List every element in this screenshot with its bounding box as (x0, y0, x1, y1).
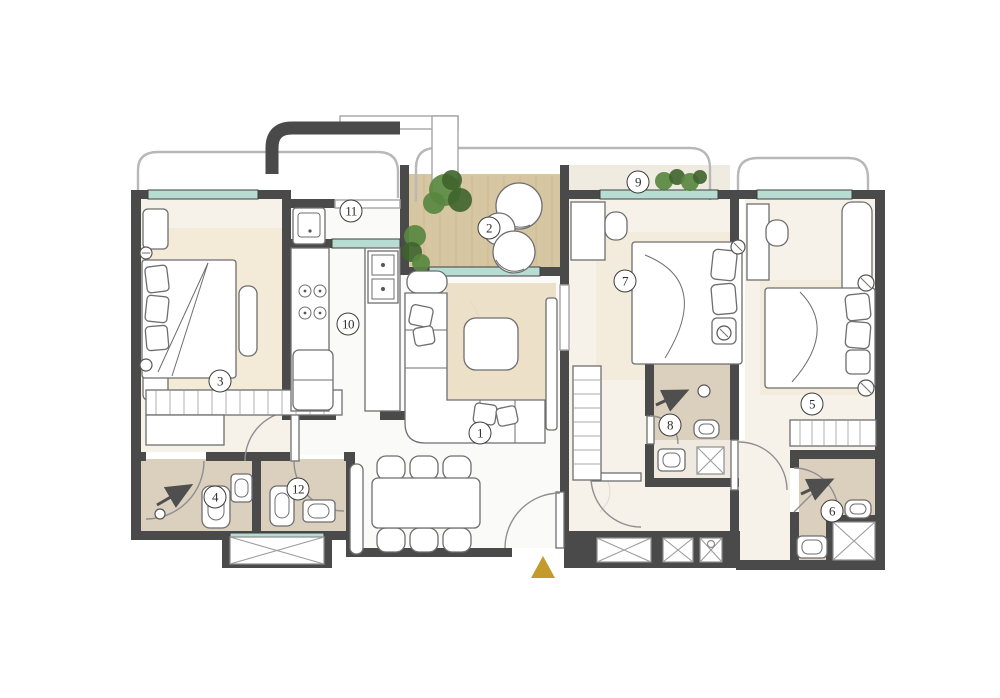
room-marker-12: 12 (287, 478, 310, 501)
nightstand (143, 209, 168, 249)
washbasin (231, 474, 252, 502)
entrance-marker (531, 556, 555, 578)
desk (747, 204, 769, 280)
sofa-pillow (408, 304, 434, 328)
window-bedroom5 (757, 190, 852, 199)
console-bench (350, 464, 363, 554)
dresser (790, 420, 876, 446)
floor-plan-drawing (0, 0, 1000, 698)
living-furniture (405, 271, 557, 443)
room-marker-4: 4 (204, 486, 227, 509)
sofa-pillow (413, 325, 436, 346)
toilet (694, 420, 719, 438)
room-marker-3: 3 (209, 370, 232, 393)
dining-chair (377, 528, 405, 552)
dining-chair (443, 456, 471, 480)
bath8-door-leaf (647, 416, 654, 444)
wardrobe-corner (146, 415, 224, 445)
desk-chair (766, 220, 788, 246)
side-table (407, 271, 447, 293)
entrance-door-leaf (556, 492, 564, 548)
hall-door-leaf (291, 411, 299, 461)
room-marker-8: 8 (659, 414, 682, 437)
pillow (144, 265, 169, 293)
pillow (846, 350, 870, 374)
pillow (145, 325, 169, 351)
desk (571, 202, 605, 260)
dining-table (372, 478, 480, 528)
room-marker-1: 1 (469, 422, 492, 445)
tv-console (546, 298, 557, 430)
pillow (711, 283, 738, 315)
room-marker-6: 6 (821, 500, 844, 523)
toilet (845, 500, 871, 518)
living-room7-sliding-panel (560, 285, 569, 350)
utility-fixtures (293, 208, 325, 244)
room-marker-11: 11 (340, 200, 363, 223)
pillow (845, 293, 872, 321)
room-marker-10: 10 (337, 313, 360, 336)
pillow (145, 295, 170, 323)
desk-chair (605, 212, 627, 240)
window-kitchen (332, 239, 400, 248)
sofa-pillow (495, 405, 518, 427)
bed-bench (239, 286, 257, 356)
coffee-table (464, 318, 518, 370)
pillow (710, 249, 737, 281)
window-bedroom3 (148, 190, 258, 199)
room-marker-7: 7 (614, 270, 637, 293)
dining-chair (377, 456, 405, 480)
corridor-door-leaf (731, 440, 738, 490)
pillow (845, 321, 871, 349)
dining-chair (410, 528, 438, 552)
dining-chair (410, 456, 438, 480)
room-marker-9: 9 (627, 171, 650, 194)
dining-chair (443, 528, 471, 552)
room-marker-5: 5 (801, 393, 824, 416)
wardrobe (573, 366, 601, 480)
round-chair (493, 231, 535, 273)
floor-plan-canvas: 123456789101112 (0, 0, 1000, 698)
washbasin (658, 449, 685, 471)
room-marker-2: 2 (478, 217, 501, 240)
window-bedroom7 (600, 190, 718, 199)
